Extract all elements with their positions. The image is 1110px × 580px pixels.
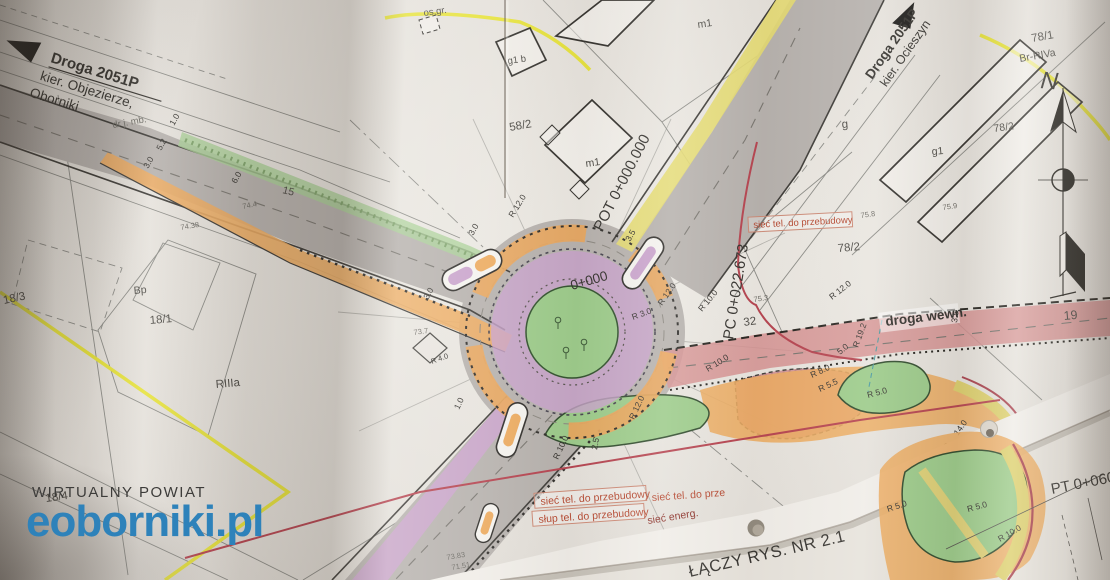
dim-label: 1.0 [452,396,466,411]
elevation: 73.7 [413,326,429,337]
parcel-os-gr: os.gr. [423,5,448,19]
utility-note-pole: słup tel. do przebudowy [538,506,650,526]
dim-label: 3.5 [949,310,961,323]
hole-punch-icon [981,421,998,438]
building-top [556,0,654,46]
parcel-18-3: 18/3 [2,291,26,307]
dim-label: 2.5 [589,437,601,451]
paper-fold-seam [504,0,506,198]
radius-label: R 4.0 [430,351,450,366]
utility-note-tel-2: sieć tel. do prze [651,487,725,504]
parcel-g: g [841,118,848,131]
parcel-m1a: m1 [585,156,601,170]
radius-label: R 12.0 [506,192,528,219]
parcel-78-1: 78/1 [1030,29,1054,45]
parcel-bp: Bp [133,284,147,297]
elevation: 74.38 [180,220,200,232]
roundabout-center-island [526,286,618,378]
photo-of-road-plan: sieć tel. do przebudowy słup tel. do prz… [0,0,1110,580]
elevation: 75.8 [860,209,876,220]
parcel-58-2: 58/2 [508,118,532,134]
hole-punch-icon [748,520,765,537]
radius-label: R 12.0 [827,278,853,301]
parcel-18-1: 18/1 [149,313,172,327]
north-label: N [1039,67,1059,95]
dim-label: 1.0 [167,112,182,127]
parcel-18-4: 18/4 [45,490,69,505]
parcel-19: 19 [1063,308,1078,323]
parcel-32: 32 [743,315,757,329]
parcel-78-2b: 78/2 [837,241,860,255]
soil-riiia: RIIIa [215,377,241,391]
dim-label: 3.0 [466,222,481,237]
parcel-g1: g1 [931,145,944,158]
parcel-m1b: m1 [697,17,713,31]
plan-drawing: sieć tel. do przebudowy słup tel. do prz… [0,0,1110,580]
